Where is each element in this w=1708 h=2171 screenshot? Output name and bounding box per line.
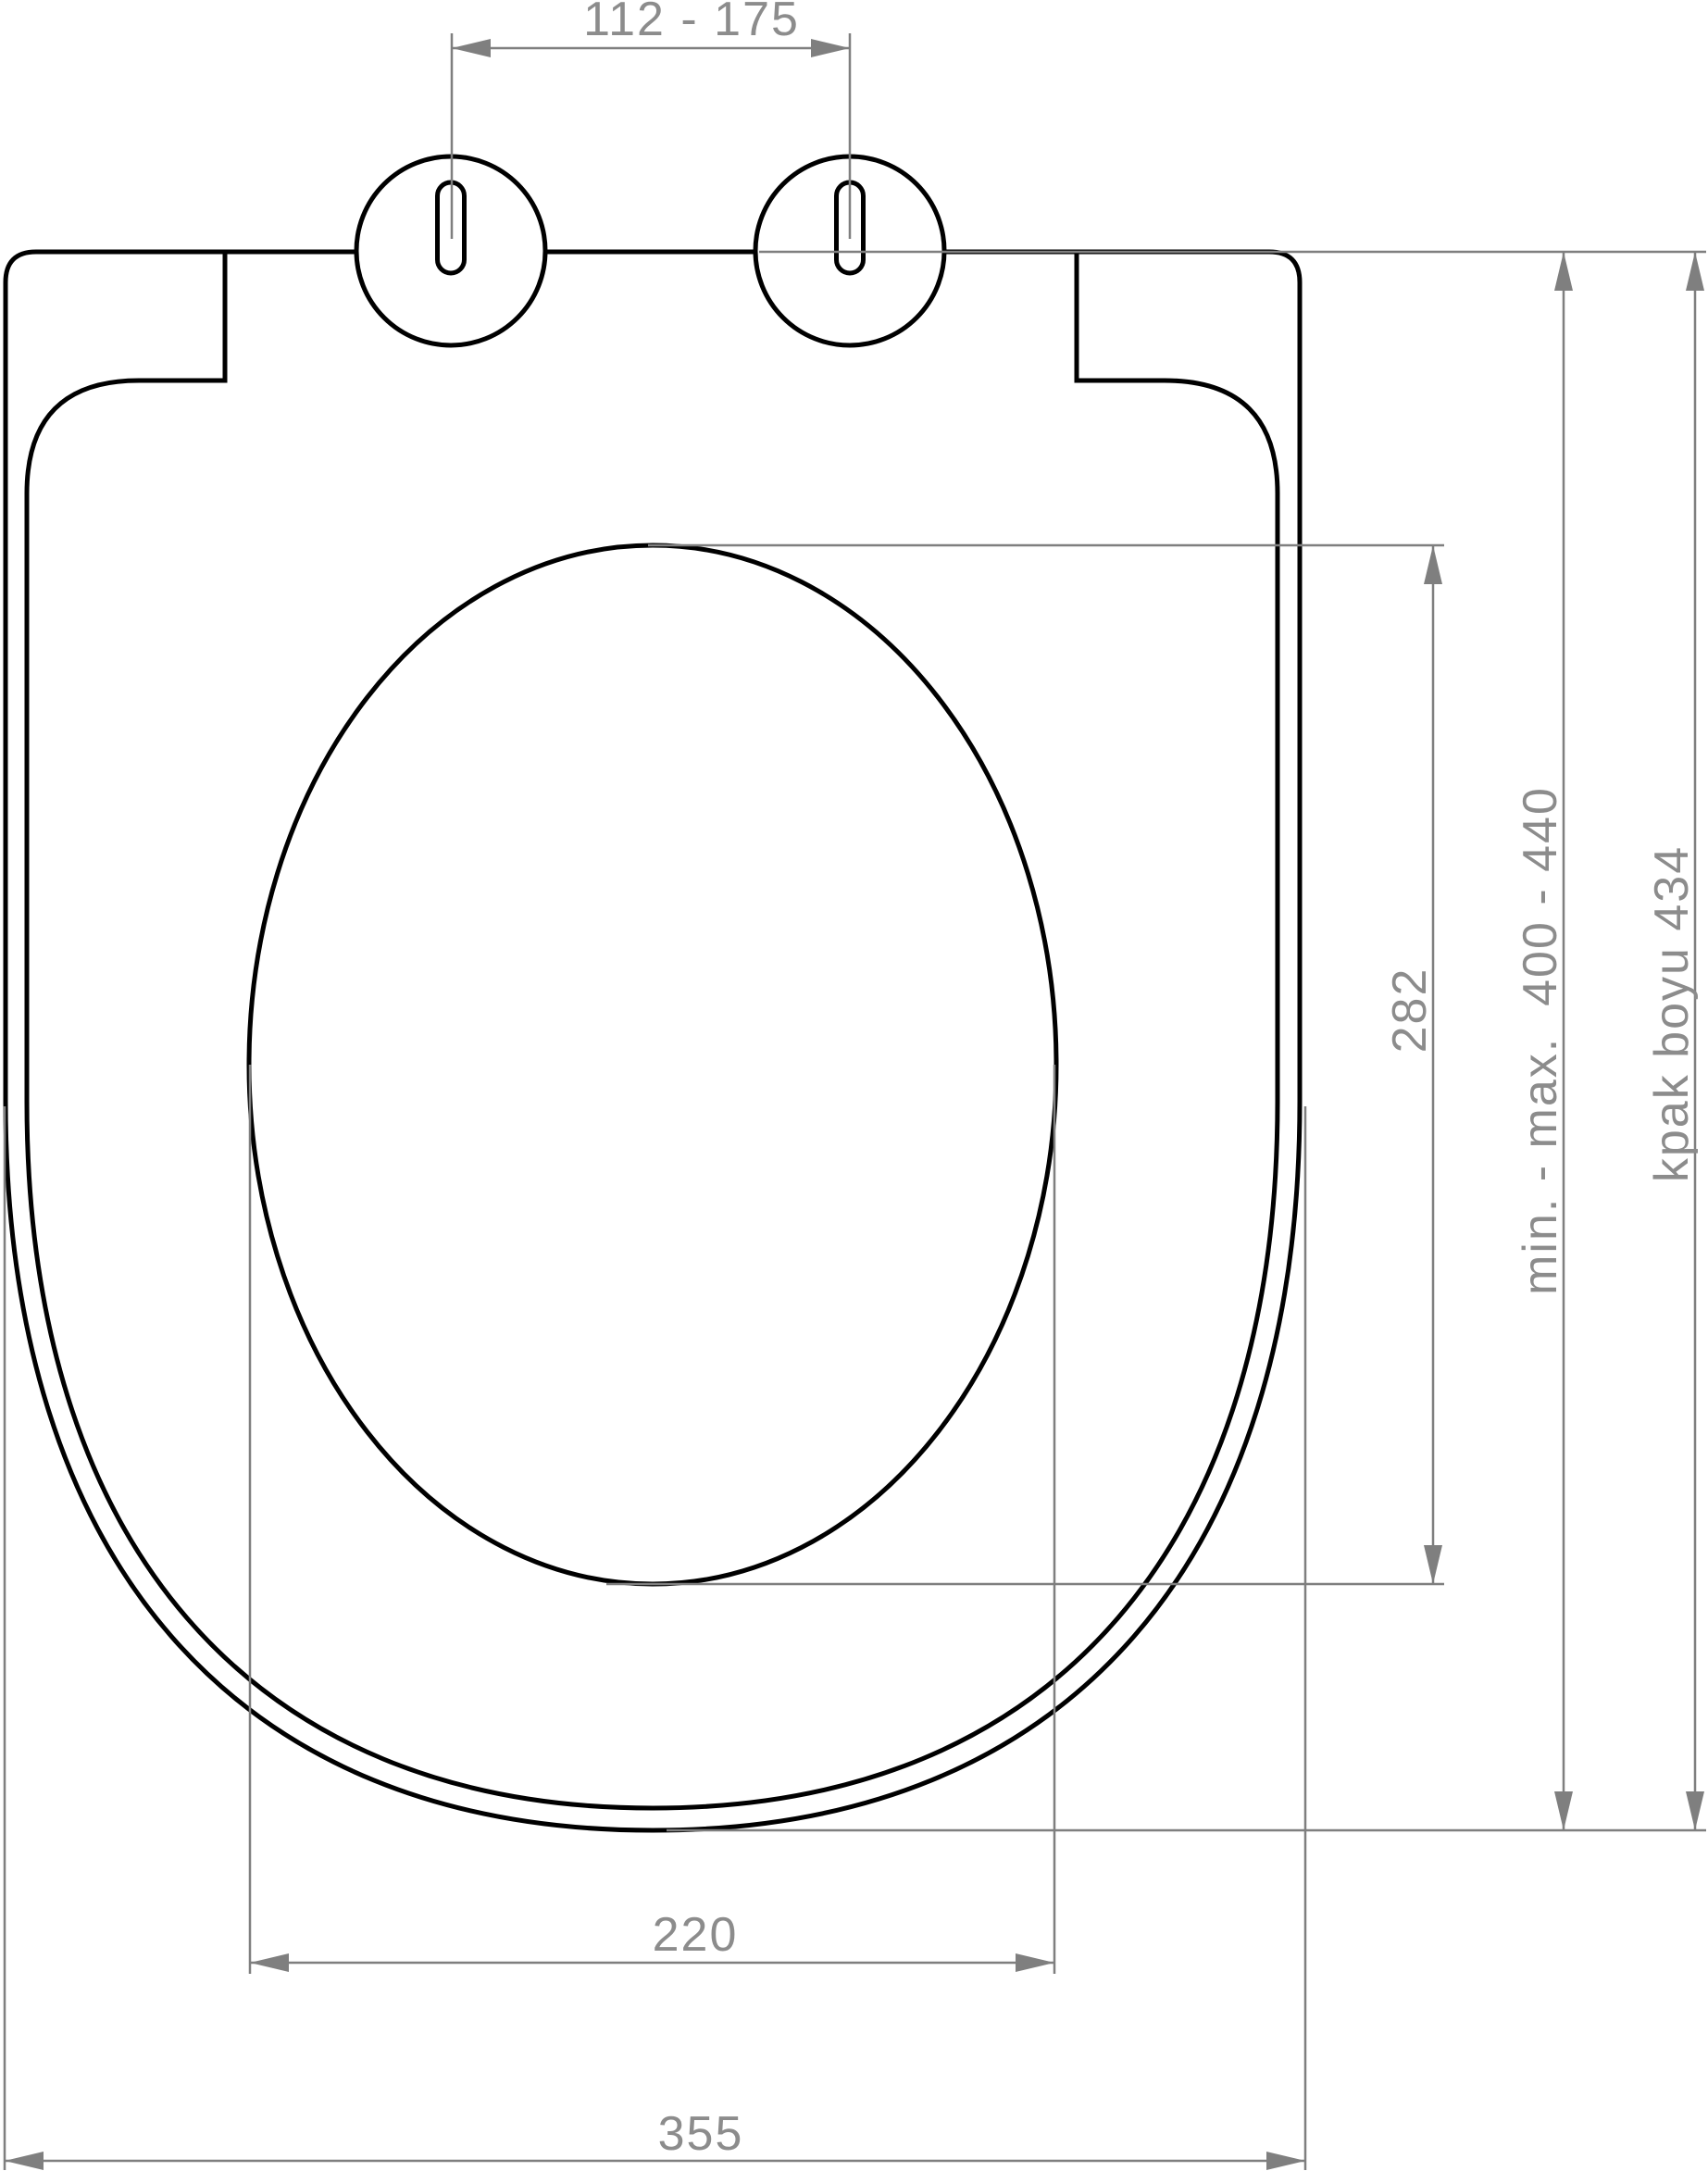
dimension-arrows-group — [5, 39, 1704, 2170]
technical-drawing-page: 112 - 175 282 min. - max. 400 - 440 kpak… — [0, 0, 1708, 2171]
toilet-seat-dimension-drawing: 112 - 175 282 min. - max. 400 - 440 kpak… — [0, 0, 1708, 2171]
seat-opening-oval — [249, 545, 1056, 1584]
arrow-seat-width-left — [5, 2152, 44, 2170]
arrow-mounting-range-top — [1554, 252, 1573, 291]
label-cover-length: kpak boyu 434 — [1645, 845, 1699, 1182]
seat-inner-rim-outline — [27, 252, 1278, 1808]
arrow-opening-height-bottom — [1424, 1545, 1442, 1584]
arrow-seat-width-right — [1266, 2152, 1305, 2170]
arrow-cover-length-top — [1686, 252, 1704, 291]
label-opening-width: 220 — [653, 1908, 739, 1962]
label-hinge-spacing: 112 - 175 — [583, 0, 800, 46]
seat-outer-outline — [6, 252, 1300, 1830]
label-mounting-range: min. - max. 400 - 440 — [1514, 786, 1567, 1295]
dimension-labels-group: 112 - 175 282 min. - max. 400 - 440 kpak… — [583, 0, 1699, 2161]
arrow-opening-width-left — [250, 1953, 289, 1972]
arrow-hinge-right — [811, 39, 850, 57]
arrow-cover-length-bottom — [1686, 1791, 1704, 1830]
label-opening-height: 282 — [1383, 967, 1437, 1054]
arrow-mounting-range-bottom — [1554, 1791, 1573, 1830]
arrow-opening-width-right — [1016, 1953, 1054, 1972]
label-seat-width: 355 — [658, 2107, 744, 2161]
seat-outline-group — [6, 252, 1300, 1830]
arrow-hinge-left — [452, 39, 491, 57]
arrow-opening-height-top — [1424, 545, 1442, 584]
dimension-lines-group — [5, 33, 1706, 2170]
